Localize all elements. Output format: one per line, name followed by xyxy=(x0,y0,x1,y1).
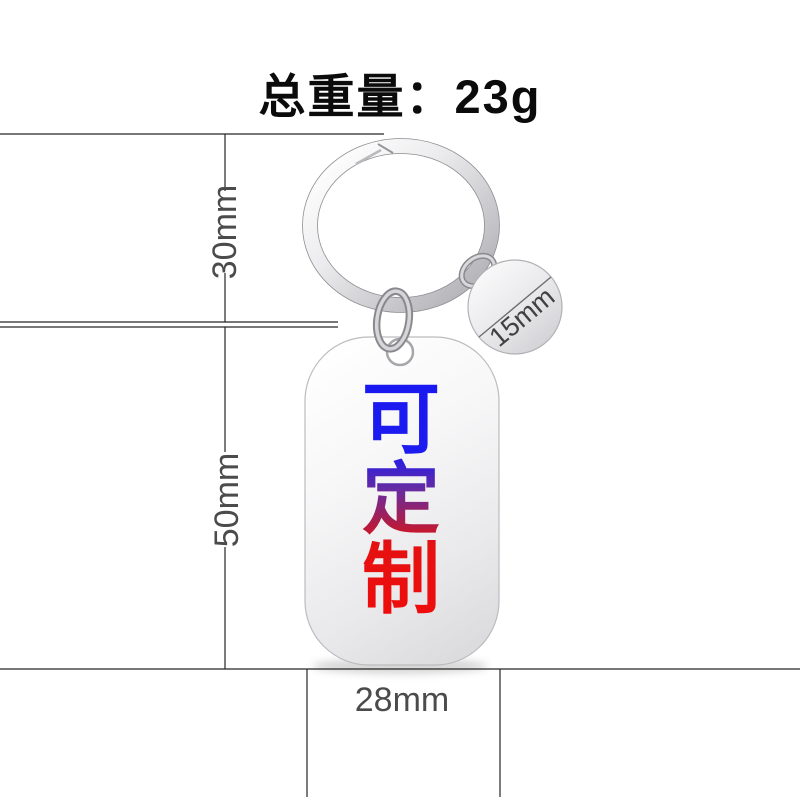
custom-text-char-3: 制 xyxy=(362,535,440,623)
tag-custom-text: 可 定 制 xyxy=(362,375,440,623)
custom-text-char-2: 定 xyxy=(362,455,440,543)
ring-height-label: 30mm xyxy=(206,185,244,279)
tag-height-label: 50mm xyxy=(208,453,246,547)
tag-width-label: 28mm xyxy=(355,681,449,719)
product-figure: 可 定 制 30mm 50mm 28mm 15mm xyxy=(0,0,800,800)
custom-text-char-1: 可 xyxy=(362,375,440,463)
product-spec-image: 总重量：23g xyxy=(0,0,800,800)
